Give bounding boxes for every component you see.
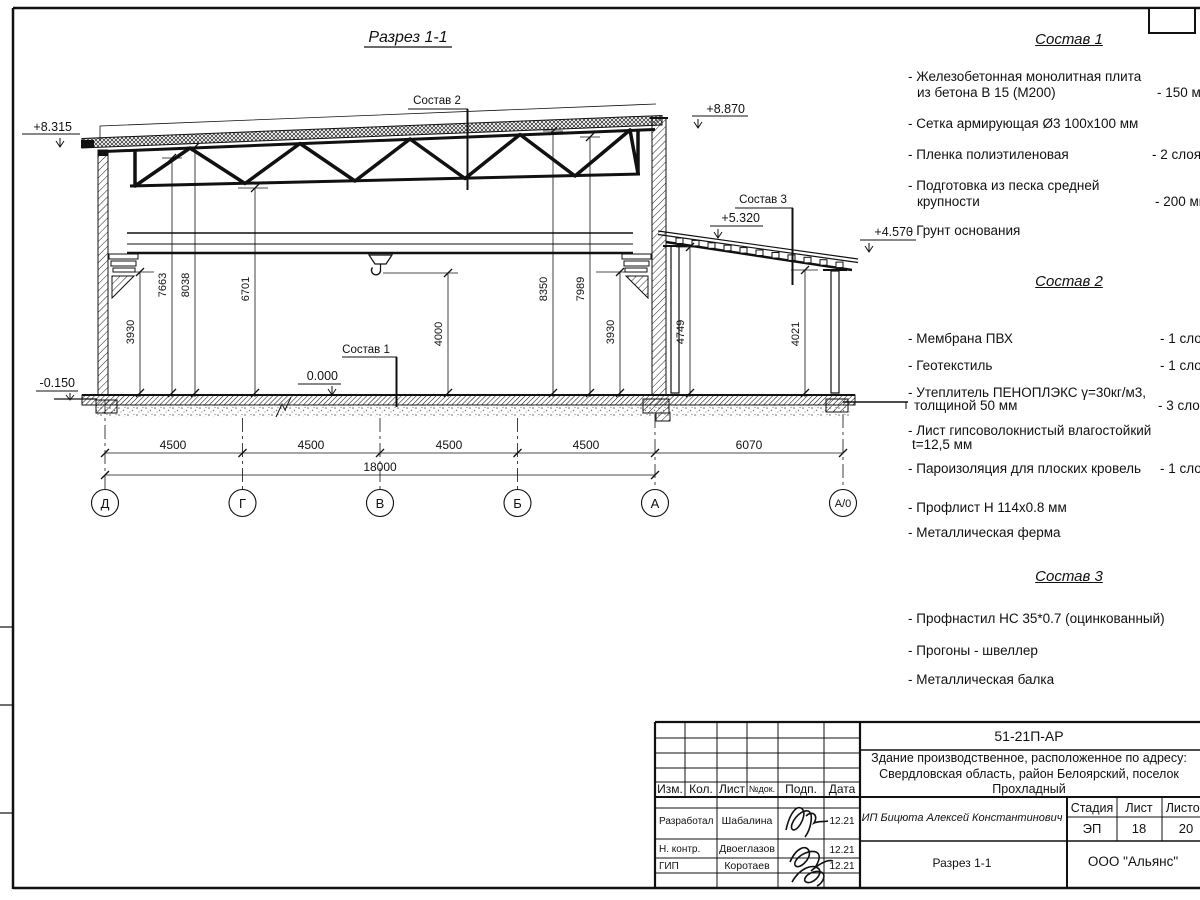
elev-ground: -0.150 — [40, 376, 75, 390]
list1-title: Состав 1 — [1004, 31, 1134, 48]
tb-company: ООО "Альянс" — [1088, 854, 1178, 869]
list-item-value: - 1 слой — [1160, 331, 1200, 346]
list-item: - Пароизоляция для плоских кровель — [908, 461, 1141, 476]
dim-4749: 4749 — [675, 320, 687, 344]
right-crane-bracket — [622, 254, 651, 298]
dim-6070: 6070 — [736, 438, 763, 452]
tb-header-ndok: №док. — [749, 784, 775, 794]
tb-client: ИП Бицюта Алексей Константинович — [862, 812, 1063, 824]
tb-date-1: 12.21 — [829, 816, 854, 827]
dim-7989: 7989 — [575, 277, 587, 301]
callout-sostav3: Состав 3 — [739, 194, 787, 206]
dim-4500-1: 4500 — [160, 438, 187, 452]
list-item: - Металлическая ферма — [908, 525, 1061, 540]
axis-G: Г — [239, 496, 246, 511]
list-item-value: - 1 слой — [1160, 358, 1200, 373]
annex-section — [658, 231, 858, 393]
list-item-value: - 200 мм — [1155, 194, 1200, 209]
list-item: крупности — [917, 194, 980, 209]
list-item: - Мембрана ПВХ — [908, 331, 1013, 346]
right-wall — [652, 118, 666, 395]
tb-header-podp: Подп. — [785, 782, 817, 796]
callout-sostav1: Состав 1 — [342, 344, 390, 356]
foundation-right — [826, 399, 848, 412]
crane-hook — [369, 255, 392, 275]
tb-date-3: 12.21 — [829, 861, 854, 872]
sand-layer — [95, 405, 850, 417]
signature-1 — [786, 808, 828, 837]
tb-project-line3: Прохладный — [992, 782, 1065, 796]
dim-4021: 4021 — [790, 322, 802, 346]
elevation-marks: +8.315 +8.870 +5.320 +4.570 0.000 -0.150 — [22, 102, 916, 400]
list-item: из бетона В 15 (М200) — [917, 85, 1056, 100]
dim-3930-left: 3930 — [125, 320, 137, 344]
title-block: Изм. Кол. Лист №док. Подп. Дата Разработ… — [655, 722, 1200, 888]
section-drawing-svg: Разрез 1-1 — [0, 0, 1200, 900]
drawing-sheet: Разрез 1-1 — [0, 0, 1200, 900]
floor-slab — [82, 395, 855, 405]
axis-bubbles — [92, 490, 857, 517]
list-item: - Подготовка из песка средней — [908, 178, 1099, 193]
tb-header-list: Лист — [719, 782, 746, 796]
left-wall — [98, 150, 108, 395]
left-crane-bracket — [109, 254, 138, 298]
truss-bottom-chord — [130, 174, 640, 186]
dim-7663: 7663 — [157, 273, 169, 297]
list2-title: Состав 2 — [1004, 273, 1134, 290]
tb-project-line1: Здание производственное, расположенное п… — [871, 751, 1187, 765]
list-item: - Пленка полиэтиленовая — [908, 147, 1069, 162]
list-item-value: - 3 слоя — [1158, 398, 1200, 413]
tb-date-2: 12.21 — [829, 845, 854, 856]
elev-annex-high: +5.320 — [721, 211, 760, 225]
list-item: толщиной 50 мм — [914, 398, 1017, 413]
dim-6701: 6701 — [240, 277, 252, 301]
axis-V: В — [376, 496, 385, 511]
drawing-title: Разрез 1-1 — [364, 29, 452, 47]
callout-sostav2: Состав 2 — [413, 95, 461, 107]
tb-header-izm: Изм. — [657, 782, 683, 796]
list3-title: Состав 3 — [1004, 568, 1134, 585]
tb-listov-value: 20 — [1179, 821, 1193, 836]
tb-stadia-value: ЭП — [1083, 821, 1102, 836]
dim-18000: 18000 — [363, 460, 397, 474]
elev-roof-left: +8.315 — [33, 120, 72, 134]
dim-4500-4: 4500 — [573, 438, 600, 452]
foundation-left — [96, 400, 117, 413]
list-item-value: - 1 слой — [1160, 461, 1200, 476]
list-item: - Лист гипсоволокнистый влагостойкий — [908, 423, 1151, 438]
tb-name-shabalina: Шабалина — [722, 815, 773, 827]
tb-sheet-name: Разрез 1-1 — [933, 856, 992, 870]
tb-role-razrabotal: Разработал — [659, 815, 714, 827]
tb-role-gip: ГИП — [659, 861, 679, 872]
tb-header-stadia: Стадия — [1071, 801, 1114, 815]
tb-header-list2: Лист — [1125, 801, 1152, 815]
tb-project-line2: Свердловская область, район Белоярский, … — [879, 767, 1179, 781]
dim-8350: 8350 — [538, 277, 550, 301]
dim-8038: 8038 — [180, 273, 192, 297]
corner-stamp-box — [1149, 8, 1195, 33]
list-item-value: - 150 мм — [1157, 85, 1200, 100]
dim-4500-3: 4500 — [436, 438, 463, 452]
list-item: - Грунт основания — [908, 223, 1020, 238]
tb-role-nkontr: Н. контр. — [659, 844, 700, 855]
foundation-middle — [643, 399, 669, 413]
axis-A0: А/0 — [835, 498, 852, 510]
list-item: - Геотекстиль — [908, 358, 992, 373]
tb-header-listov: Листов — [1166, 801, 1200, 815]
list-item-value: - 2 слоя — [1152, 147, 1200, 162]
tb-doc-number: 51-21П-АР — [994, 728, 1063, 744]
signature-scribbles — [786, 808, 833, 886]
dim-4500-2: 4500 — [298, 438, 325, 452]
list-item: - Профнастил НС 35*0.7 (оцинкованный) — [908, 611, 1165, 626]
list-item: - Прогоны - швеллер — [908, 643, 1038, 658]
signature-2 — [790, 848, 833, 886]
annex-right-column — [831, 271, 839, 393]
list-item: t=12,5 мм — [912, 437, 972, 452]
tb-header-data: Дата — [829, 782, 856, 796]
list-item: - Профлист Н 114х0.8 мм — [908, 500, 1067, 515]
roof-eave-cap — [81, 140, 94, 148]
tb-name-dvoeglazov: Двоеглазов — [719, 843, 775, 855]
axis-D: Д — [101, 496, 110, 511]
floor-and-ground — [54, 395, 908, 421]
elev-floor: 0.000 — [307, 369, 338, 383]
annex-left-column — [671, 246, 679, 393]
tb-list-value: 18 — [1132, 821, 1146, 836]
tb-header-kol: Кол. — [689, 782, 713, 796]
elev-roof-right: +8.870 — [706, 102, 745, 116]
list-item: - Железобетонная монолитная плита — [908, 69, 1141, 84]
axis-A: А — [651, 496, 660, 511]
dim-3930-right: 3930 — [605, 320, 617, 344]
tb-name-korotaev: Коротаев — [724, 860, 770, 872]
axis-B: Б — [513, 496, 522, 511]
horizontal-dimensions: 4500 4500 4500 4500 6070 18000 Д Г В Б А… — [92, 400, 857, 517]
dim-4000: 4000 — [433, 322, 445, 346]
page-title: Разрез 1-1 — [368, 29, 447, 46]
list-item: - Металлическая балка — [908, 672, 1054, 687]
list-item: - Сетка армирующая Ø3 100х100 мм — [908, 116, 1138, 131]
